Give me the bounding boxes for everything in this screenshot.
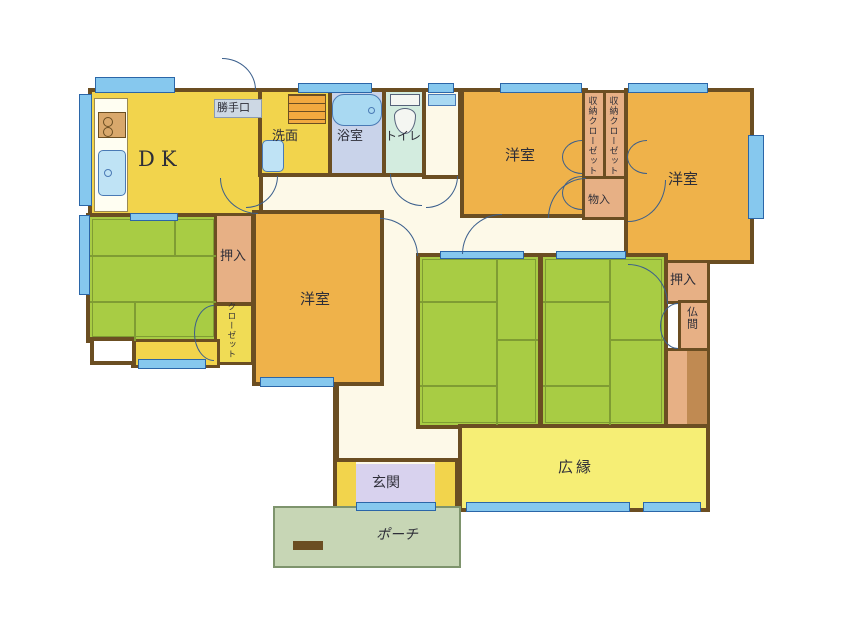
washing-machine-icon <box>288 94 326 124</box>
genkan-side-right <box>435 462 455 506</box>
window <box>466 502 630 512</box>
kitchen-sink-icon <box>98 150 126 196</box>
sliding-door <box>556 251 626 259</box>
bifold-door-icon <box>660 303 678 349</box>
genkan-side-left <box>337 462 356 506</box>
wall-segment <box>333 382 339 464</box>
bifold-door-icon <box>627 140 647 174</box>
window <box>79 215 90 295</box>
bifold-door-icon <box>562 140 582 174</box>
label-yoshitsu-center: 洋室 <box>300 292 330 308</box>
window <box>643 502 701 512</box>
window <box>500 83 582 93</box>
counter-icon <box>428 94 456 106</box>
window <box>628 83 708 93</box>
label-katteguchi: 勝手口 <box>217 102 250 114</box>
stove-icon <box>98 112 126 138</box>
label-yoshitsu-top-right: 洋室 <box>668 172 698 188</box>
window <box>748 135 764 219</box>
bifold-door-icon <box>194 305 214 361</box>
label-senmen: 洗面 <box>272 130 298 144</box>
room-tatami-center-1 <box>416 253 542 429</box>
washbasin-icon <box>262 140 284 172</box>
corridor-right <box>662 348 710 428</box>
label-oshiire-left: 押入 <box>220 250 246 264</box>
label-hiroen: 広縁 <box>558 460 594 476</box>
window <box>95 77 175 93</box>
tatami-frame <box>422 259 536 423</box>
label-butsuma: 仏間 <box>686 306 698 350</box>
label-yokushitsu: 浴室 <box>337 130 363 144</box>
label-oshiire-right: 押入 <box>670 274 696 288</box>
entrance-sliding-door <box>356 502 436 511</box>
door-arc-katteguchi <box>222 58 256 90</box>
label-dk: DK <box>138 148 183 170</box>
label-genkan: 玄関 <box>372 476 400 491</box>
label-yoshitsu-top-left: 洋室 <box>505 148 535 164</box>
sliding-door <box>130 213 178 221</box>
window <box>79 94 92 206</box>
window <box>298 83 372 93</box>
window <box>428 83 454 93</box>
floor-plan: DK 勝手口 洗面 浴室 トイレ 洋室 洋室 収納クローゼット 収納クローゼット… <box>0 0 857 626</box>
label-porch: ポーチ <box>376 528 418 543</box>
label-closet: クローゼット <box>226 302 235 364</box>
label-monoire: 物入 <box>588 194 610 206</box>
porch-step-mark <box>293 541 323 550</box>
outline-notch <box>90 337 136 365</box>
room-porch <box>273 506 461 568</box>
window <box>260 377 334 387</box>
corridor-strip <box>687 351 707 425</box>
toilet-icon <box>390 94 420 106</box>
label-toilet: トイレ <box>385 130 421 143</box>
bathtub-icon <box>332 94 382 126</box>
